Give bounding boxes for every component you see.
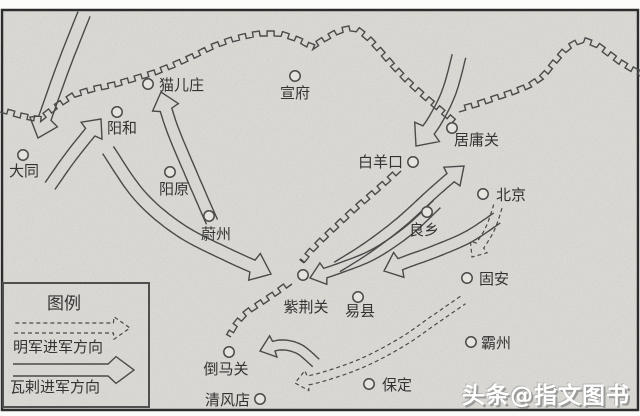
city-label: 易县 <box>345 302 375 320</box>
city-marker <box>112 107 122 117</box>
city-label: 阳原 <box>159 180 189 198</box>
city-marker <box>143 79 153 89</box>
city-label: 保定 <box>382 376 412 394</box>
city-marker <box>466 337 476 347</box>
city-marker <box>408 157 418 167</box>
historical-campaign-map: 大同阳和猫儿庄宣府阳原蔚州白羊口居庸关北京良乡固安紫荆关易县霸州保定倒马关清风店… <box>0 0 640 416</box>
city-marker <box>422 207 432 217</box>
city-label: 蔚州 <box>201 225 231 243</box>
city-marker <box>353 292 363 302</box>
legend-title: 图例 <box>47 294 81 314</box>
city-marker <box>165 167 175 177</box>
map-canvas: 大同阳和猫儿庄宣府阳原蔚州白羊口居庸关北京良乡固安紫荆关易县霸州保定倒马关清风店… <box>0 0 640 416</box>
city-label: 宣府 <box>280 84 310 102</box>
city-label: 白羊口 <box>358 153 403 171</box>
city-label: 清风店 <box>205 391 250 409</box>
city-marker <box>298 270 308 280</box>
city-marker <box>462 273 472 283</box>
city-marker <box>478 189 488 199</box>
city-marker <box>290 71 300 81</box>
city-label: 霸州 <box>481 334 511 352</box>
legend-label-ming: 明军进军方向 <box>13 338 103 356</box>
city-marker <box>255 394 265 404</box>
city-marker <box>364 379 374 389</box>
city-marker <box>224 347 234 357</box>
city-label: 大同 <box>9 162 39 180</box>
city-label: 北京 <box>496 186 526 204</box>
city-label: 阳和 <box>107 119 137 137</box>
city-label: 居庸关 <box>454 131 499 149</box>
city-label: 倒马关 <box>203 360 248 378</box>
city-label: 固安 <box>479 270 509 288</box>
legend-label-oirat: 瓦剌进军方向 <box>10 378 100 396</box>
city-label: 猫儿庄 <box>159 76 204 94</box>
city-marker <box>204 211 214 221</box>
watermark: 头条@指文图书 <box>462 376 630 410</box>
city-label: 紫荆关 <box>283 298 328 316</box>
city-label: 良乡 <box>409 221 439 239</box>
city-marker <box>18 150 28 160</box>
